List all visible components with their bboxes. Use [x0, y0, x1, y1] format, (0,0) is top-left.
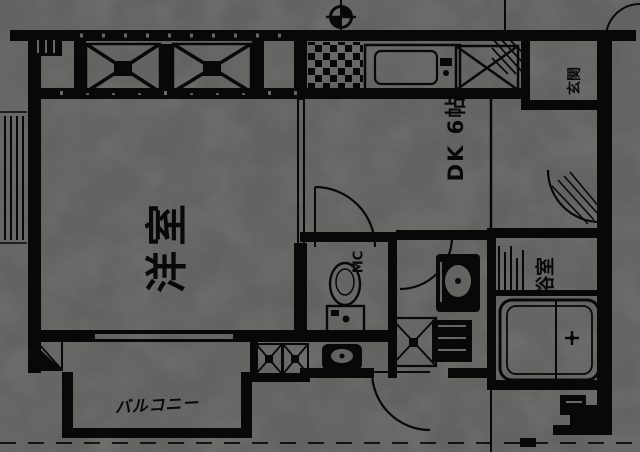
floor-plan-scan: 洋室 DK 6帖 浴室 玄関 MC バルコニー	[0, 0, 640, 452]
floor-plan-drawing: 洋室 DK 6帖 浴室 玄関 MC バルコニー	[0, 0, 640, 452]
scan-speck-noise	[0, 0, 640, 452]
